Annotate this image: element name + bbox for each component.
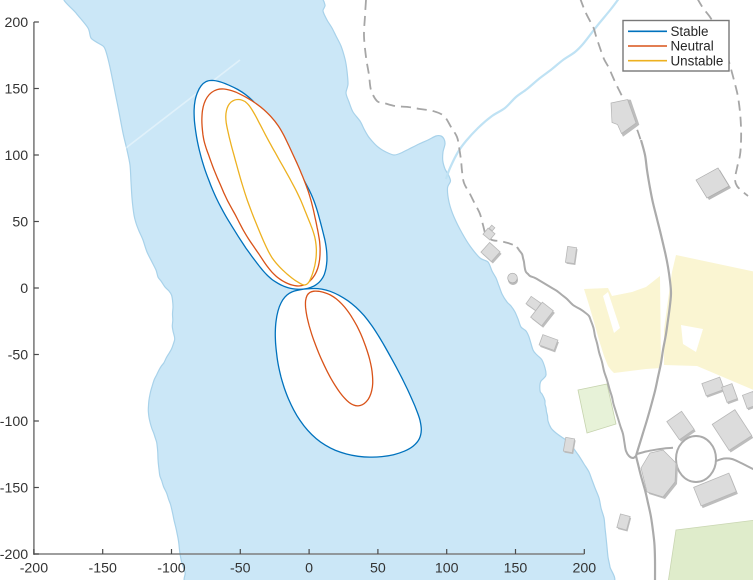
svg-text:-50: -50 [230,561,251,577]
svg-text:150: 150 [5,82,29,98]
svg-text:100: 100 [435,561,459,577]
svg-text:0: 0 [20,281,28,297]
svg-text:200: 200 [5,15,29,31]
svg-text:0: 0 [305,561,313,577]
svg-text:Neutral: Neutral [671,39,714,54]
svg-text:-150: -150 [88,561,117,577]
svg-text:-100: -100 [157,561,186,577]
svg-text:150: 150 [504,561,528,577]
svg-text:100: 100 [5,148,29,164]
svg-text:200: 200 [572,561,596,577]
svg-text:-150: -150 [0,481,28,497]
svg-text:50: 50 [370,561,386,577]
svg-text:50: 50 [12,215,28,231]
svg-text:-200: -200 [20,561,49,577]
svg-text:-50: -50 [8,348,29,364]
svg-text:Stable: Stable [671,24,709,39]
svg-text:Unstable: Unstable [671,53,724,68]
svg-text:-100: -100 [0,414,28,430]
